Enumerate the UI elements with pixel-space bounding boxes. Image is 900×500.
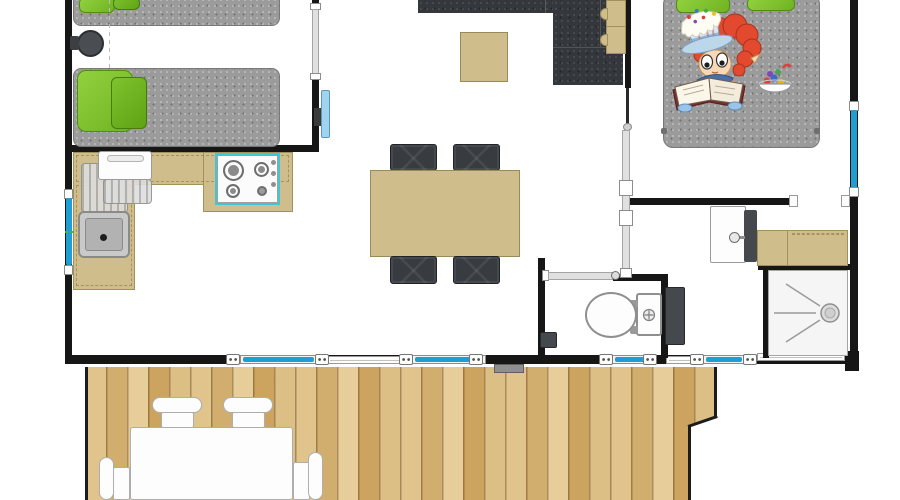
deck-edge-right-top (714, 367, 717, 418)
beds-divider-dashed (109, 0, 110, 68)
deck-edge-right-bottom (688, 426, 691, 500)
window-sill (666, 356, 693, 364)
bathroom-counter-edge (787, 231, 788, 265)
outdoor-chair-back (152, 397, 202, 413)
candy-bowl (759, 65, 791, 92)
green-pillow (113, 0, 140, 10)
shelf-unit (606, 0, 626, 54)
window-right (851, 110, 857, 188)
doorway-post (841, 195, 850, 207)
hob-burner (226, 184, 240, 198)
tv-screen (321, 90, 330, 138)
door-cap (620, 268, 632, 278)
latch-icon (315, 354, 329, 365)
green-pillow (111, 77, 147, 129)
sliding-door-twin-bedroom (312, 9, 319, 75)
hob-burner (257, 186, 267, 196)
open-book (673, 78, 745, 112)
latch-icon (226, 354, 240, 365)
toilet-flush-button (642, 308, 656, 322)
window-cap (849, 187, 859, 197)
coffee-table (460, 32, 508, 82)
face (699, 50, 731, 78)
dining-chair (453, 256, 500, 284)
fridge-handle (107, 155, 144, 162)
outdoor-table (130, 427, 293, 500)
latch-icon (743, 354, 757, 365)
outdoor-chair-back (99, 457, 114, 500)
outdoor-chair-seat (161, 412, 194, 428)
hob-knob (271, 160, 276, 165)
sofa-seam (545, 0, 546, 13)
wall-bedroom-bathroom (627, 198, 793, 205)
dining-chair (390, 256, 437, 284)
window-cap (64, 265, 73, 275)
hob-knob (271, 182, 276, 187)
stool-wall-tab (70, 36, 79, 50)
shower-detail (768, 270, 848, 356)
shelf-tab (600, 8, 608, 20)
deck-edge-left (85, 367, 88, 500)
reading-child-illustration (655, 2, 800, 120)
outdoor-chair-seat (113, 467, 130, 500)
wc-door-panel (548, 272, 613, 280)
shelf-tab (600, 34, 608, 46)
latch-icon (399, 354, 413, 365)
hob-knob (271, 171, 276, 176)
toilet-bowl (585, 292, 637, 338)
patio-door-glass (706, 357, 742, 362)
wc-door-hinge (611, 271, 620, 280)
wall-left (65, 0, 72, 362)
sliding-door-double-bedroom (622, 130, 630, 277)
washbasin (710, 206, 746, 263)
bedside-stool (77, 30, 104, 57)
doorway-post (789, 195, 798, 207)
window-sill (327, 356, 402, 364)
bed-foot (661, 128, 667, 134)
outdoor-chair-seat (232, 412, 265, 428)
dining-chair (453, 144, 500, 171)
water-heater (665, 287, 685, 345)
door-handle (619, 210, 633, 226)
shelf-divider (607, 26, 625, 27)
latch-icon (469, 354, 483, 365)
bed-foot (814, 128, 820, 134)
wall-living-bedroom-thin (626, 88, 629, 126)
floor-plan (0, 0, 900, 500)
hob-burner (223, 160, 244, 181)
drainboard (103, 179, 152, 204)
washbasin-vanity (744, 210, 757, 262)
latch-icon (643, 354, 657, 365)
patio-door-glass (243, 357, 314, 362)
door-handle (619, 180, 633, 196)
door-mat (494, 364, 524, 373)
dining-chair (390, 144, 437, 171)
latch-icon (599, 354, 613, 365)
outdoor-chair-back (308, 452, 323, 500)
outdoor-chair-back (223, 397, 273, 413)
bathroom-counter (757, 230, 848, 266)
latch-icon (690, 354, 704, 365)
hob-burner (254, 162, 269, 177)
sink-drain (100, 234, 107, 241)
counter-outline (792, 233, 844, 235)
door-cap (310, 73, 321, 80)
dining-table (370, 170, 520, 257)
wc-wall-box (540, 332, 557, 348)
washbasin-faucet-knob (729, 232, 740, 243)
